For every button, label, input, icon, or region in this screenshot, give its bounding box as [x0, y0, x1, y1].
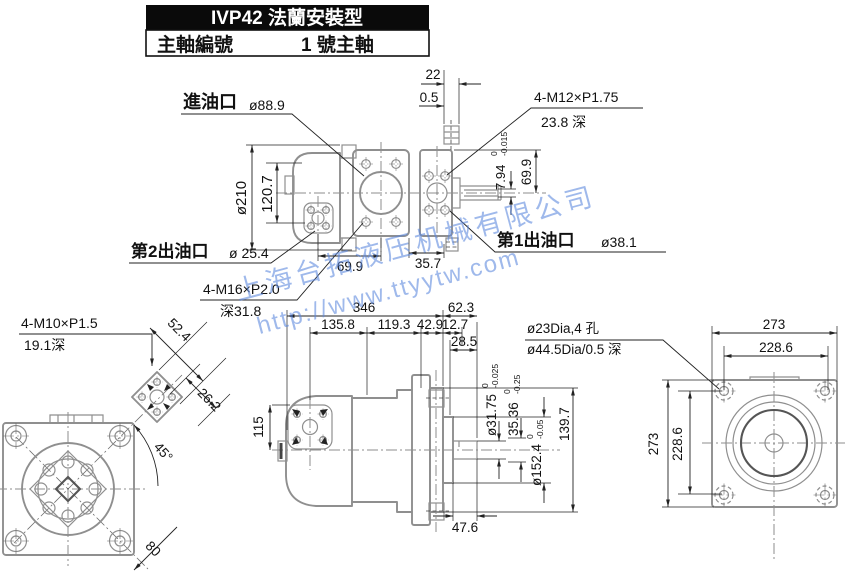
corner-bolt-hole [814, 484, 837, 507]
dim-0-5: 0.5 [420, 90, 439, 105]
corner-bolt-hole [3, 423, 29, 449]
bolt-hole [152, 407, 163, 418]
bolt-hole [306, 221, 317, 232]
cartridge-outline [293, 153, 340, 243]
drawing-canvas: IVP42 法蘭安裝型 主軸編號 1 號主軸 [0, 0, 845, 571]
bolt-hole [389, 215, 403, 229]
spindle-number-value: 1 號主軸 [301, 33, 374, 56]
front-view: 4-M10×P1.5 19.1深 52.4 26.2 45° 80 [0, 315, 230, 570]
bolt-hole [306, 205, 317, 216]
dim-28-5: 28.5 [451, 334, 477, 349]
dim-228-6-left: 228.6 [670, 427, 685, 461]
pilot-dia-dim: ø152.4 0 -0.05 [525, 419, 545, 486]
dim-115: 115 [251, 416, 266, 438]
corner-bolt-hole [713, 484, 736, 507]
dim-22: 22 [425, 67, 440, 82]
shaft-dia-dim: ø31.75 0 -0.025 [480, 364, 500, 436]
spindle-number-label: 主軸編號 [157, 33, 233, 56]
bolt-hole [422, 203, 436, 217]
dim-273-left: 273 [646, 433, 661, 456]
flange-bolt-top [429, 390, 444, 407]
bolt-hole [359, 157, 373, 171]
dim-139-7: 139.7 [557, 407, 572, 441]
key-width-dim: 7.94 0 -0.015 [489, 132, 509, 190]
rear-flange-square [712, 380, 837, 507]
bolt-hole [422, 169, 436, 183]
body-steps [340, 158, 354, 238]
dim-52-4: 52.4 [165, 315, 195, 345]
key-section-top [444, 126, 459, 144]
outlet1-dia: ø38.1 [601, 234, 637, 250]
tol-lower: -0.025 [490, 364, 500, 388]
bolt-hole [152, 377, 163, 388]
angle-arc [134, 425, 158, 486]
tol-lower: -0.25 [512, 374, 522, 394]
inlet-port-label: 進油口 [183, 91, 237, 112]
outlet2-dia: ø 25.4 [229, 245, 269, 261]
dim-119-3: 119.3 [378, 317, 411, 332]
tol-upper: 0 [502, 389, 512, 394]
bolt-hole [137, 392, 148, 403]
dim-228-6-top: 228.6 [759, 340, 793, 355]
tol-lower: -0.05 [535, 419, 545, 439]
shaft-dia-value: ø31.75 [484, 394, 499, 436]
key-section-lines [444, 132, 459, 138]
rear-holes-spec: ø23Dia,4 孔 [527, 321, 600, 336]
tol-upper: 0 [489, 151, 499, 156]
m10-spec: 4-M10×P1.5 [21, 315, 98, 331]
dim-120-7: 120.7 [259, 175, 276, 213]
dim-26-2: 26.2 [195, 385, 224, 414]
m12-depth: 23.8 深 [541, 114, 586, 130]
model-title: IVP42 法蘭安裝型 [211, 6, 363, 29]
dim-62-3: 62.3 [448, 300, 474, 315]
m12-spec: 4-M12×P1.75 [534, 89, 619, 105]
dim-dia210: ø210 [233, 181, 250, 215]
rear-recess-spec: ø44.5Dia/0.5 深 [527, 342, 622, 357]
tol-lower: -0.015 [499, 132, 509, 156]
dim-69-9-right: 69.9 [519, 159, 534, 185]
dim-42-9: 42.9 [417, 317, 443, 332]
ext-lines [444, 70, 459, 124]
corner-bolt-hole [107, 423, 133, 449]
key-width-value: 7.94 [493, 165, 508, 190]
bolt-hole [438, 169, 452, 183]
pilot-dia-value: ø152.4 [529, 443, 544, 486]
corner-bolt-hole [814, 380, 837, 403]
key-height-dim: 35.36 0 -0.25 [502, 374, 522, 436]
dim-47-6: 47.6 [452, 520, 478, 535]
dim-80: 80 [143, 538, 164, 559]
front-top-tab [50, 415, 103, 423]
bolt-hole [359, 215, 373, 229]
outlet2-label: 第2出油口 [131, 241, 208, 261]
inlet-port-dia: ø88.9 [249, 97, 285, 113]
dim-12-7: 12.7 [442, 317, 468, 332]
detail-port-bore [150, 390, 164, 404]
tol-upper: 0 [525, 434, 535, 439]
bolt-hole [389, 157, 403, 171]
dim-273-top: 273 [763, 317, 786, 332]
tol-upper: 0 [480, 383, 490, 388]
title-block: IVP42 法蘭安裝型 主軸編號 1 號主軸 [146, 5, 429, 56]
side-midbody [352, 390, 412, 512]
m10-depth: 19.1深 [24, 337, 65, 353]
key-height-value: 35.36 [506, 402, 521, 436]
pump-technical-drawing: IVP42 法蘭安裝型 主軸編號 1 號主軸 [0, 0, 845, 571]
bolt-hole [438, 203, 452, 217]
bolt-hole [167, 392, 178, 403]
